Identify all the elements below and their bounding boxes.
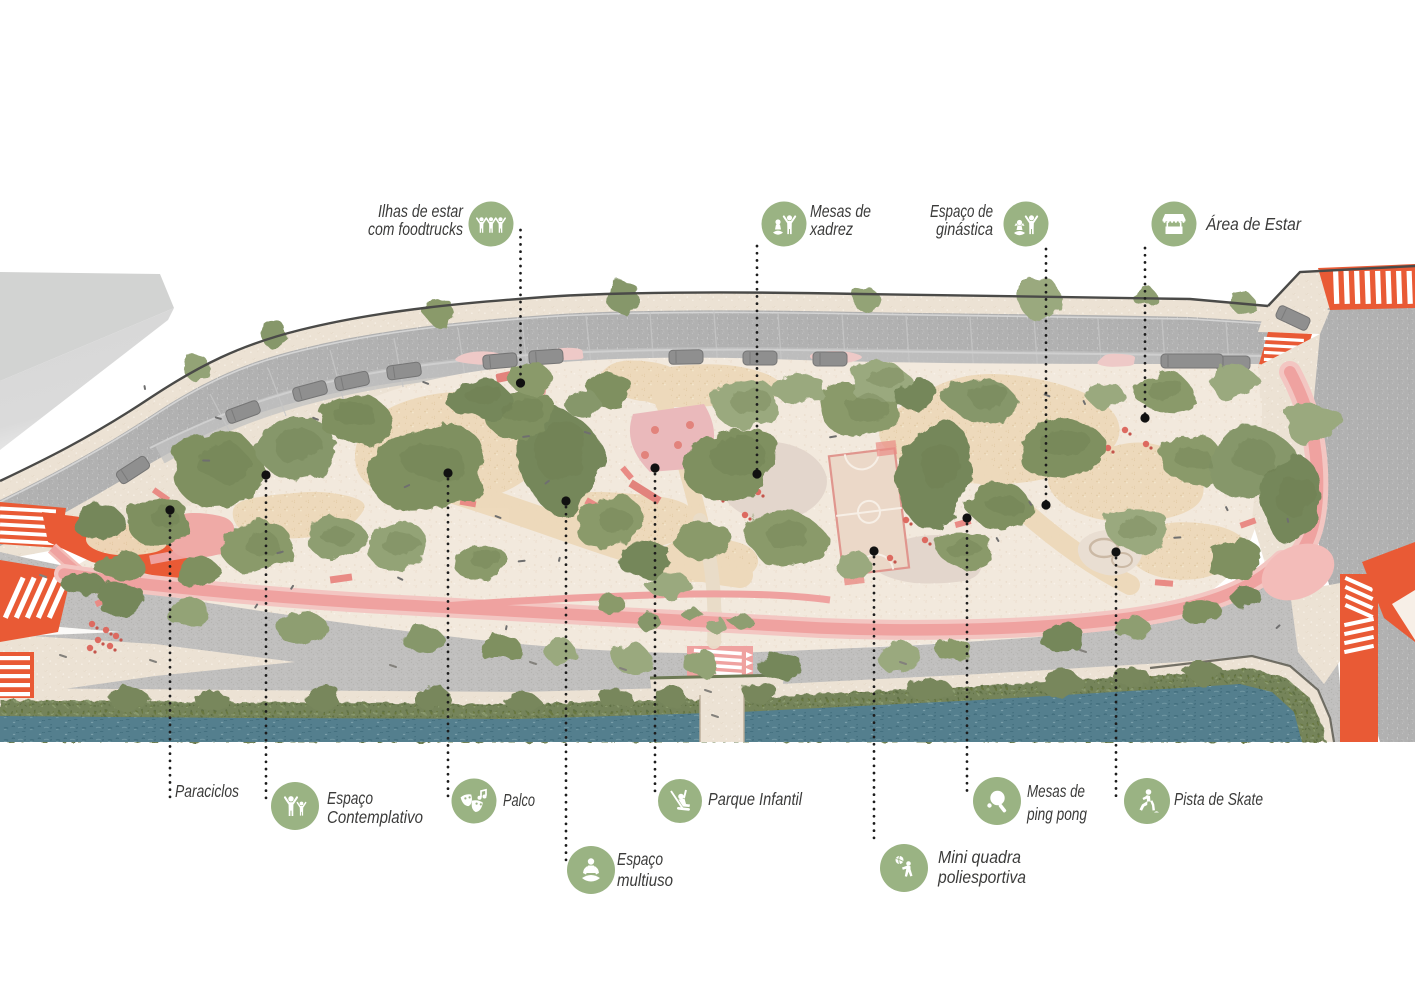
svg-text:Paraciclos: Paraciclos [175, 781, 239, 801]
svg-text:com foodtrucks: com foodtrucks [368, 219, 463, 239]
svg-text:poliesportiva: poliesportiva [937, 867, 1026, 887]
svg-text:Mesas de: Mesas de [810, 201, 871, 221]
svg-text:xadrez: xadrez [809, 219, 853, 239]
svg-text:multiuso: multiuso [617, 870, 673, 890]
svg-text:Contemplativo: Contemplativo [327, 807, 423, 827]
svg-text:Palco: Palco [503, 790, 535, 810]
svg-text:ginástica: ginástica [936, 219, 993, 239]
svg-text:Área de Estar: Área de Estar [1205, 214, 1302, 234]
svg-text:ping pong: ping pong [1026, 804, 1087, 824]
svg-text:Mesas de: Mesas de [1027, 781, 1085, 801]
svg-text:Mini quadra: Mini quadra [938, 847, 1021, 867]
svg-text:Ilhas de estar: Ilhas de estar [378, 201, 464, 221]
svg-text:Espaço: Espaço [617, 849, 663, 869]
svg-text:Espaço de: Espaço de [930, 201, 993, 221]
svg-text:Espaço: Espaço [327, 788, 373, 808]
svg-text:Parque Infantil: Parque Infantil [708, 789, 803, 809]
svg-text:Pista de Skate: Pista de Skate [1174, 789, 1263, 809]
